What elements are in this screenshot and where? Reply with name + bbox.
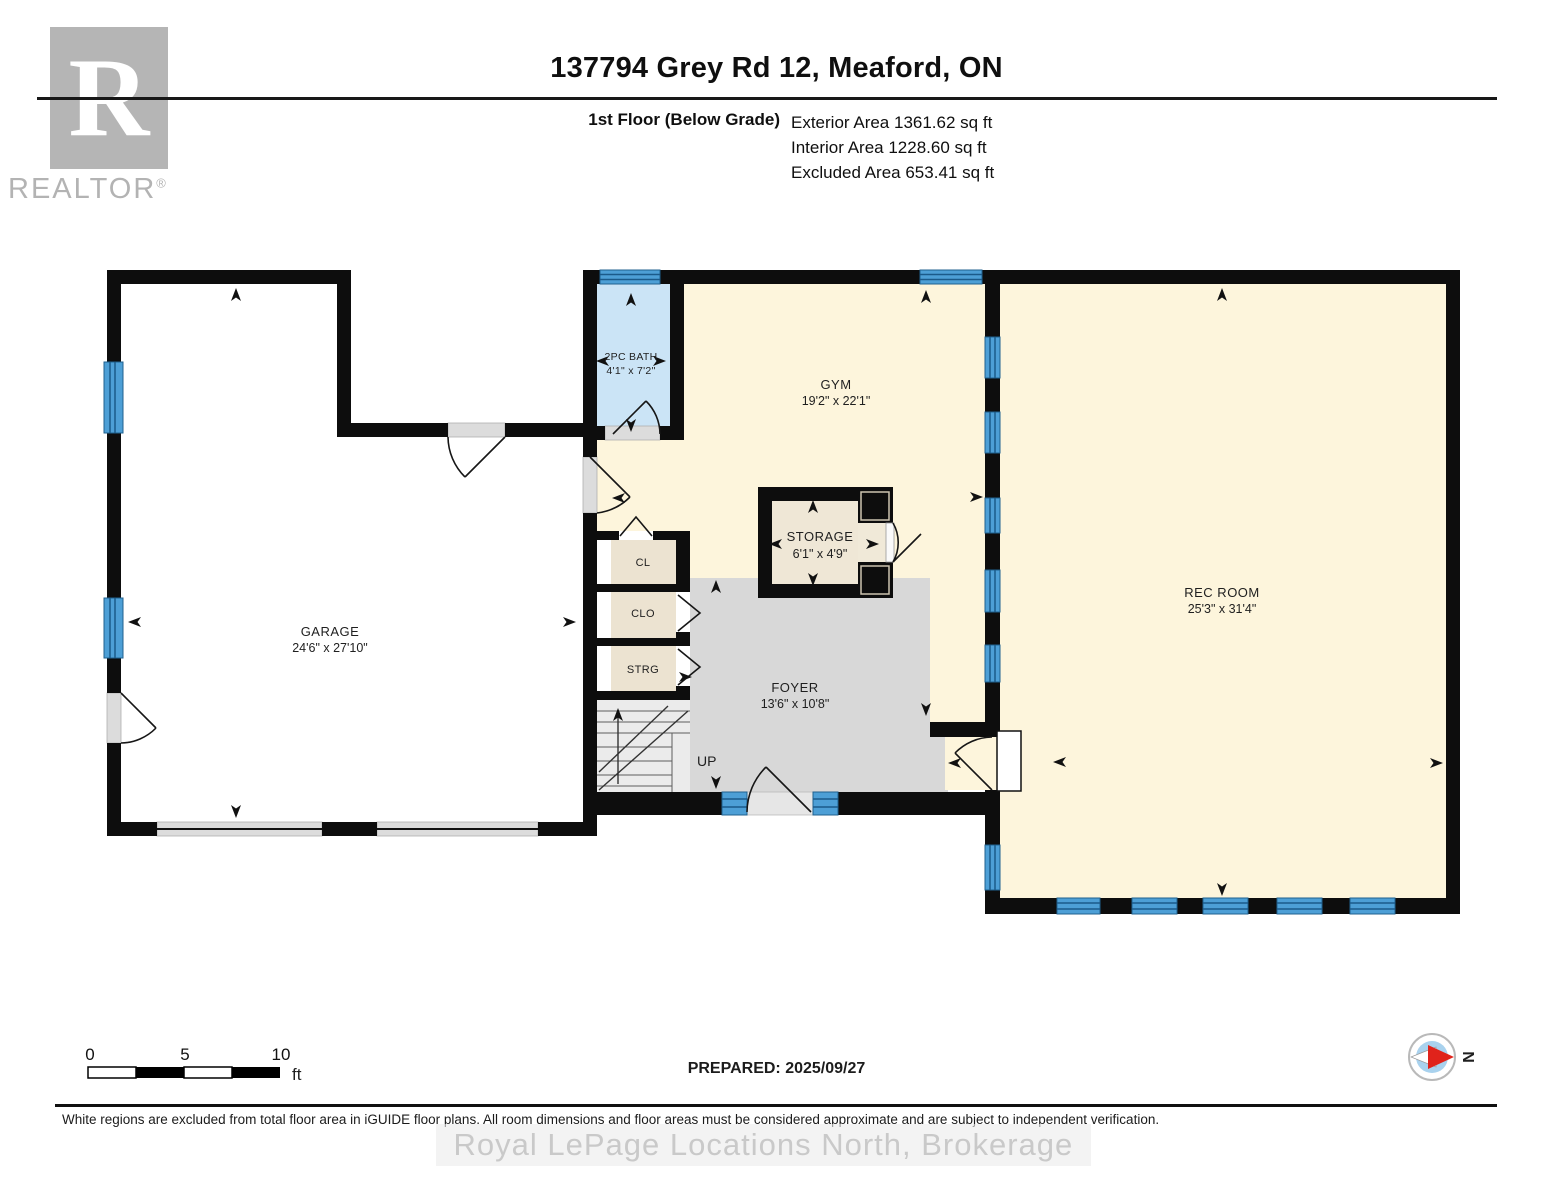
window [600, 270, 660, 284]
realtor-wordmark: REALTOR [8, 173, 156, 205]
rec-room-dims: 25'3" x 31'4" [1188, 602, 1257, 616]
door-swing-garage-side [121, 693, 156, 743]
door-sill-garage-side [107, 693, 121, 743]
strg-label: STRG [627, 664, 659, 676]
window [104, 598, 123, 658]
window [722, 792, 747, 815]
stairs [597, 700, 690, 792]
door-swing-garage-rear [448, 437, 505, 477]
window [985, 498, 1000, 533]
brokerage-watermark: Royal LePage Locations North, Brokerage [436, 1124, 1092, 1166]
floorplan-page: R REALTOR® 137794 Grey Rd 12, Meaford, O… [0, 0, 1553, 1200]
garage-dims: 24'6" x 27'10" [292, 641, 368, 655]
hallway [597, 440, 684, 531]
gym-label: GYM [820, 377, 851, 392]
storage-label: STORAGE [787, 529, 854, 544]
door-sill-garage-hall [583, 457, 597, 513]
gym-room-strip [930, 578, 985, 722]
foyer-dims: 13'6" x 10'8" [761, 697, 830, 711]
prepared-date: PREPARED: 2025/09/27 [0, 1060, 1553, 1078]
window [1057, 898, 1100, 914]
window [1132, 898, 1177, 914]
window [985, 645, 1000, 682]
bath-dims: 4'1" x 7'2" [606, 365, 655, 377]
clo-label: CLO [631, 608, 655, 620]
registered-mark: ® [156, 175, 168, 190]
rec-door-leaf [997, 731, 1021, 791]
stairs-area [597, 700, 690, 792]
storage-dims: 6'1" x 4'9" [793, 547, 848, 561]
rec-room-label: REC ROOM [1184, 585, 1260, 600]
gym-dims: 19'2" x 22'1" [802, 394, 871, 408]
window [920, 270, 982, 284]
realtor-logo-text: REALTOR® [8, 173, 168, 206]
bath-label: 2PC BATH [605, 351, 658, 363]
title-divider [37, 97, 1497, 100]
window [985, 337, 1000, 378]
foyer-label: FOYER [771, 680, 818, 695]
garage-label: GARAGE [301, 624, 360, 639]
window [1277, 898, 1322, 914]
up-label: UP [697, 753, 716, 769]
window [104, 362, 123, 433]
footer-divider [55, 1104, 1497, 1107]
window [985, 412, 1000, 453]
window [1203, 898, 1248, 914]
window [1350, 898, 1395, 914]
floorplan-drawing: GARAGE 24'6" x 27'10" 2PC BATH 4'1" x 7'… [0, 0, 1553, 1200]
storage-door-sill [886, 523, 894, 562]
cl-label: CL [636, 557, 651, 569]
window [985, 845, 1000, 890]
window [985, 570, 1000, 612]
door-sill-garage-rear [448, 423, 505, 437]
window [813, 792, 838, 815]
